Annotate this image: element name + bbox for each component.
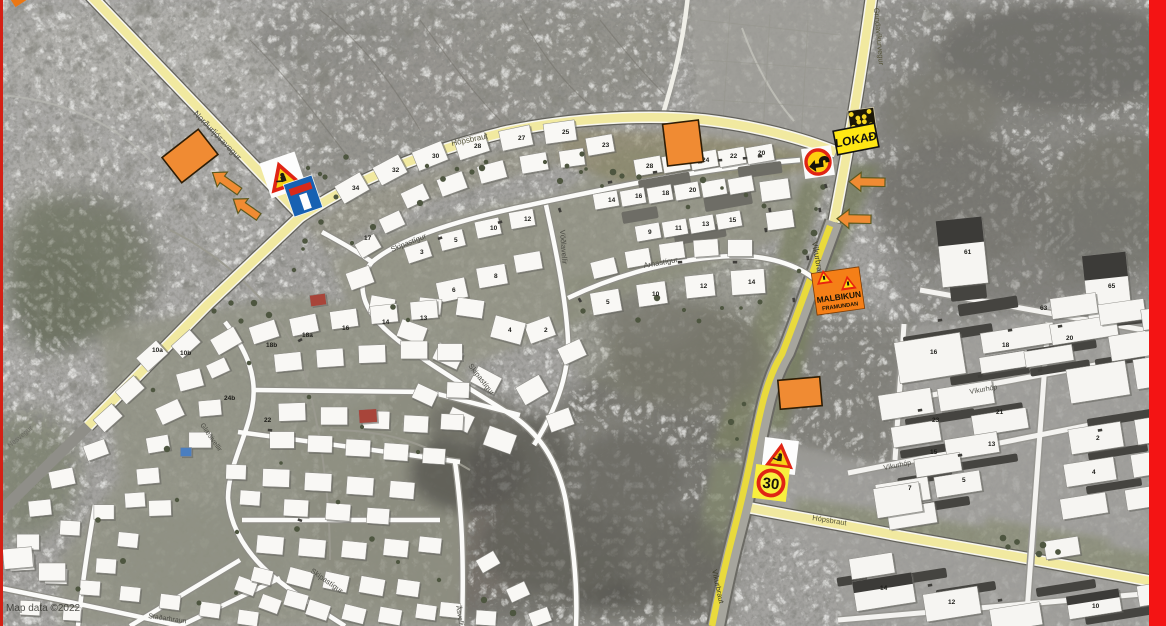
svg-text:10: 10 <box>652 291 660 298</box>
svg-text:24b: 24b <box>224 395 235 402</box>
svg-text:22: 22 <box>264 417 272 424</box>
svg-text:28: 28 <box>474 143 482 150</box>
svg-text:5: 5 <box>454 237 458 244</box>
svg-text:12: 12 <box>948 599 956 606</box>
svg-text:14: 14 <box>748 279 756 286</box>
svg-text:28: 28 <box>646 163 654 170</box>
svg-text:18: 18 <box>662 190 670 197</box>
svg-text:32: 32 <box>392 167 400 174</box>
svg-text:3: 3 <box>420 249 424 256</box>
svg-text:16: 16 <box>635 193 643 200</box>
svg-text:2: 2 <box>1096 435 1100 442</box>
svg-text:4: 4 <box>508 327 512 334</box>
svg-text:13: 13 <box>702 221 710 228</box>
svg-text:27: 27 <box>518 135 526 142</box>
svg-text:8: 8 <box>494 273 498 280</box>
svg-text:15: 15 <box>729 217 737 224</box>
svg-text:23: 23 <box>932 417 940 424</box>
svg-text:4: 4 <box>1092 469 1096 476</box>
svg-text:12: 12 <box>524 216 532 223</box>
svg-text:16: 16 <box>342 325 350 332</box>
svg-text:12: 12 <box>700 283 708 290</box>
svg-text:20: 20 <box>1066 335 1074 342</box>
svg-text:61: 61 <box>964 249 972 256</box>
svg-text:10: 10 <box>490 225 498 232</box>
svg-text:25: 25 <box>562 129 570 136</box>
svg-text:7: 7 <box>908 485 912 492</box>
svg-text:14: 14 <box>880 585 888 592</box>
svg-text:20: 20 <box>758 150 766 157</box>
svg-text:10: 10 <box>1092 603 1100 610</box>
svg-text:22: 22 <box>730 153 738 160</box>
svg-text:20: 20 <box>689 187 697 194</box>
svg-text:15: 15 <box>930 449 938 456</box>
svg-text:14: 14 <box>382 319 390 326</box>
svg-text:30: 30 <box>432 153 440 160</box>
svg-text:10a: 10a <box>152 347 163 354</box>
svg-text:6: 6 <box>452 287 456 294</box>
svg-text:18b: 18b <box>266 342 277 349</box>
svg-text:16: 16 <box>930 349 938 356</box>
svg-text:5: 5 <box>962 477 966 484</box>
svg-text:11: 11 <box>675 225 682 232</box>
svg-text:9: 9 <box>648 229 652 236</box>
svg-text:13: 13 <box>988 441 996 448</box>
svg-text:63: 63 <box>1040 305 1048 312</box>
svg-text:65: 65 <box>1108 283 1116 290</box>
svg-text:13: 13 <box>420 315 428 322</box>
svg-text:17: 17 <box>364 235 372 242</box>
svg-text:Map data ©2022: Map data ©2022 <box>6 603 81 614</box>
svg-text:30: 30 <box>762 475 781 494</box>
svg-text:34: 34 <box>352 185 360 192</box>
svg-text:10b: 10b <box>180 350 191 357</box>
svg-text:14: 14 <box>608 197 616 204</box>
svg-text:5: 5 <box>606 299 610 306</box>
svg-text:21: 21 <box>996 409 1004 416</box>
svg-text:18: 18 <box>1002 342 1010 349</box>
svg-text:18a: 18a <box>302 332 313 339</box>
svg-text:2: 2 <box>544 327 548 334</box>
svg-text:23: 23 <box>602 142 610 149</box>
